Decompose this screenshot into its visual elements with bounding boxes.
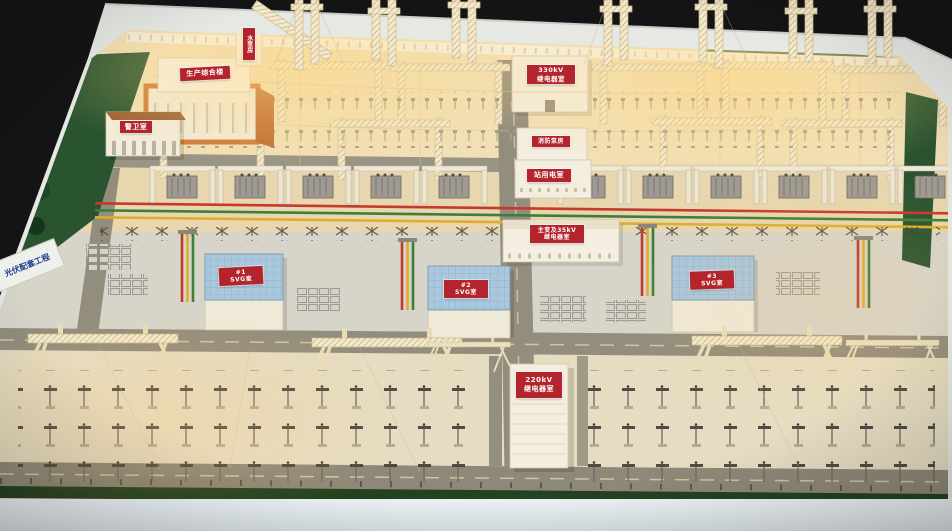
admin-building-sign: 生产综合楼 [180, 66, 231, 82]
svg2-line2: SVG室 [455, 289, 477, 297]
relay-330-line1: 330kV [538, 66, 563, 74]
relay-220-sign: 220kV 继电器室 [516, 372, 562, 398]
relay-330-sign: 330kV 继电器室 [527, 65, 575, 84]
model-scenery [0, 0, 952, 531]
substation-model-photo: 光伏配套工程 生产综合楼 水泵房 警卫室 330kV 继电器室 消防泵房 站用电… [0, 0, 952, 531]
fire-pump-sign: 消防泵房 [532, 136, 570, 147]
main-transformer-relay-sign: 主变及35kV 继电器室 [530, 225, 584, 243]
station-power-sign: 站用电室 [527, 169, 571, 182]
guard-room-sign: 警卫室 [120, 121, 152, 133]
relay-220-line2: 继电器室 [524, 385, 554, 394]
vignette [0, 0, 952, 531]
main-tx-line1: 主变及35kV [538, 227, 576, 235]
svg-room-2-sign: #2 SVG室 [444, 280, 488, 298]
svg-room-3-sign: #3 SVG室 [690, 270, 735, 290]
main-tx-line2: 继电器室 [544, 234, 570, 242]
svg-room-1-sign: #1 SVG室 [219, 266, 264, 286]
svg2-line1: #2 [461, 282, 471, 290]
svg3-line2: SVG室 [701, 280, 723, 288]
pump-tower-sign: 水泵房 [243, 28, 255, 60]
svg1-line2: SVG室 [230, 275, 252, 284]
relay-220-line1: 220kV [525, 376, 552, 385]
relay-330-line2: 继电器室 [537, 75, 565, 83]
